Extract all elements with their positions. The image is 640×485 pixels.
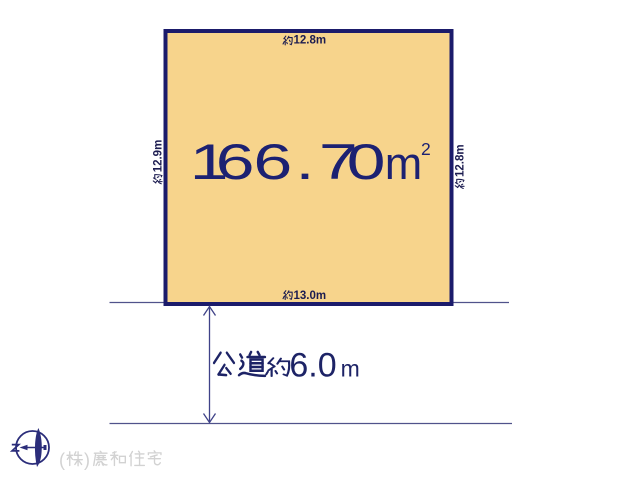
svg-text:m: m (385, 138, 423, 189)
svg-text:(: ( (59, 450, 65, 470)
svg-text:12.9m: 12.9m (152, 140, 164, 173)
svg-text:12.8m: 12.8m (294, 35, 327, 47)
svg-text:13.0m: 13.0m (294, 290, 327, 302)
svg-text:m: m (341, 356, 360, 382)
svg-text:): ) (84, 450, 90, 470)
svg-text:2: 2 (421, 139, 431, 159)
svg-text:166.70: 166.70 (190, 134, 386, 190)
svg-text:12.8m: 12.8m (454, 144, 466, 177)
svg-text:6.0: 6.0 (289, 347, 336, 385)
